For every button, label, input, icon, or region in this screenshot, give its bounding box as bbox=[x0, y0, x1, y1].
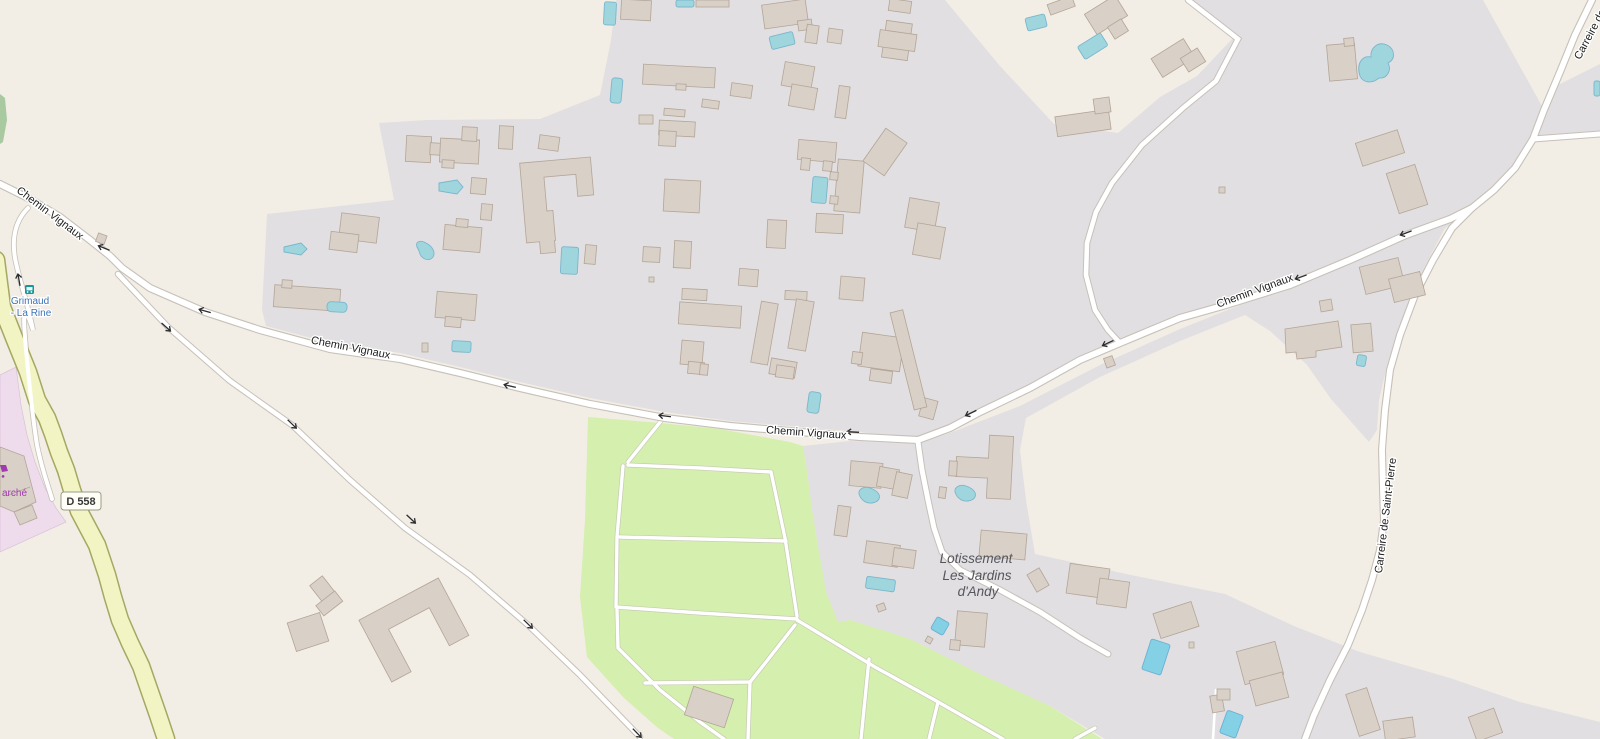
svg-text:Grimaud: Grimaud bbox=[11, 296, 49, 307]
svg-text:Lotissement: Lotissement bbox=[940, 551, 1014, 566]
svg-text:Les Jardins: Les Jardins bbox=[942, 568, 1011, 583]
svg-text:- La Rine: - La Rine bbox=[11, 308, 52, 319]
svg-text:arché: arché bbox=[2, 488, 27, 499]
svg-text:D 558: D 558 bbox=[66, 496, 95, 508]
svg-text:d'Andy: d'Andy bbox=[958, 584, 1000, 599]
